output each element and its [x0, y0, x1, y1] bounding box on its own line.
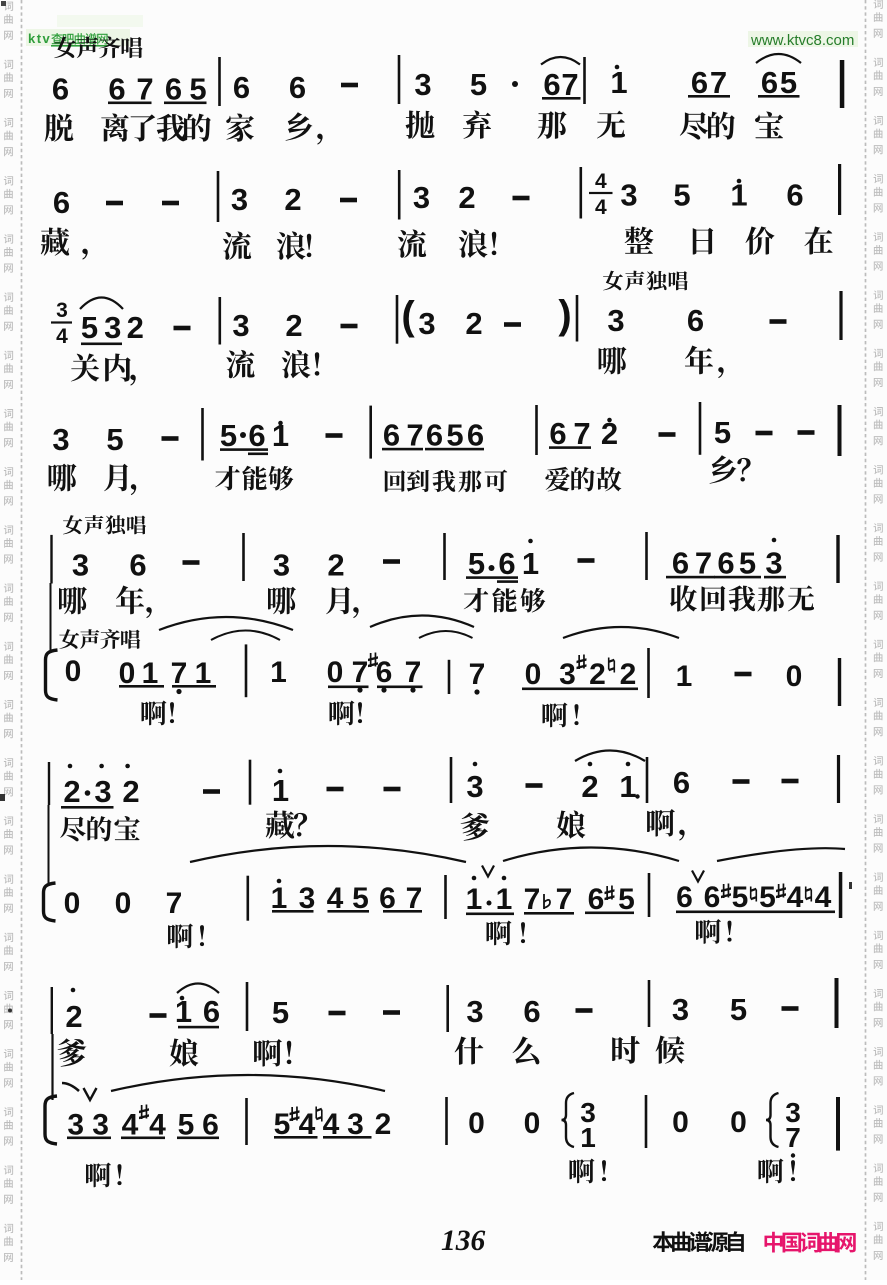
svg-text:3: 3 — [273, 548, 290, 583]
svg-text:0: 0 — [64, 887, 81, 920]
svg-text:3: 3 — [418, 306, 435, 341]
svg-text:3: 3 — [607, 303, 624, 338]
svg-text:7: 7 — [573, 416, 590, 451]
svg-text:2: 2 — [620, 658, 637, 691]
svg-text:7: 7 — [166, 887, 183, 920]
svg-text:5: 5 — [739, 546, 756, 581]
svg-text:6: 6 — [498, 546, 515, 581]
svg-text:6: 6 — [549, 416, 566, 451]
svg-text:7: 7 — [710, 65, 727, 100]
svg-text:0: 0 — [786, 660, 803, 693]
svg-text:5: 5 — [470, 67, 487, 102]
svg-text:3: 3 — [72, 548, 89, 583]
svg-text:5: 5 — [272, 995, 289, 1030]
svg-text:4: 4 — [56, 325, 68, 348]
svg-text:3: 3 — [56, 299, 68, 322]
svg-text:1: 1 — [619, 769, 636, 804]
svg-text:2: 2 — [284, 182, 301, 217]
svg-text:1: 1 — [676, 660, 693, 693]
svg-text:5: 5 — [780, 65, 797, 100]
svg-text:5: 5 — [81, 310, 98, 345]
svg-text:3: 3 — [414, 67, 431, 102]
svg-text:6: 6 — [673, 765, 690, 800]
svg-text:5: 5 — [759, 881, 776, 914]
svg-text:5: 5 — [468, 546, 485, 581]
svg-text:4: 4 — [815, 881, 832, 914]
svg-text:3: 3 — [466, 994, 483, 1029]
svg-text:7: 7 — [524, 883, 541, 916]
svg-text:0: 0 — [525, 658, 542, 691]
svg-text:3: 3 — [413, 180, 430, 215]
svg-text:1: 1 — [466, 883, 483, 916]
svg-text:2: 2 — [127, 310, 144, 345]
svg-text:3: 3 — [765, 546, 782, 581]
svg-text:6: 6 — [717, 546, 734, 581]
svg-text:6: 6 — [376, 656, 393, 689]
svg-text:6: 6 — [704, 881, 721, 914]
svg-text:2: 2 — [589, 658, 606, 691]
svg-text:6: 6 — [588, 883, 605, 916]
svg-text:3: 3 — [104, 310, 121, 345]
svg-text:3: 3 — [232, 308, 249, 343]
svg-text:5: 5 — [673, 178, 690, 213]
svg-text:3: 3 — [559, 658, 576, 691]
svg-text:5: 5 — [730, 992, 747, 1027]
svg-text:5: 5 — [189, 72, 206, 107]
svg-text:5: 5 — [618, 883, 635, 916]
svg-text:0: 0 — [468, 1107, 485, 1140]
svg-text:0: 0 — [730, 1106, 747, 1139]
svg-text:): ) — [558, 293, 571, 337]
svg-text:2: 2 — [285, 308, 302, 343]
svg-text:6: 6 — [383, 418, 400, 453]
svg-text:6: 6 — [543, 67, 560, 102]
svg-text:6: 6 — [523, 994, 540, 1029]
svg-text:3: 3 — [620, 178, 637, 213]
svg-text:5: 5 — [446, 418, 463, 453]
svg-text:6: 6 — [233, 70, 250, 105]
svg-text:0: 0 — [65, 655, 82, 688]
svg-text:2: 2 — [581, 769, 598, 804]
svg-text:2: 2 — [63, 774, 80, 809]
svg-text:6: 6 — [165, 72, 182, 107]
svg-text:6: 6 — [52, 72, 69, 107]
svg-text:1: 1 — [522, 546, 539, 581]
svg-text:7: 7 — [556, 883, 573, 916]
svg-text:2: 2 — [327, 548, 344, 583]
svg-text:2: 2 — [375, 1108, 392, 1141]
svg-text:7: 7 — [785, 1122, 801, 1153]
svg-text:6: 6 — [761, 65, 778, 100]
svg-text:4: 4 — [595, 170, 607, 193]
svg-text:7: 7 — [561, 67, 578, 102]
svg-text:6: 6 — [467, 418, 484, 453]
svg-text:6: 6 — [289, 70, 306, 105]
svg-text:1: 1 — [580, 1122, 596, 1153]
svg-text:7: 7 — [469, 658, 486, 691]
svg-text:7: 7 — [136, 72, 153, 107]
svg-text:6: 6 — [248, 418, 265, 453]
svg-text:0: 0 — [327, 656, 344, 689]
svg-text:6: 6 — [129, 548, 146, 583]
svg-text:7: 7 — [405, 656, 422, 689]
svg-text:6: 6 — [108, 72, 125, 107]
svg-text:3: 3 — [52, 422, 69, 457]
svg-text:3: 3 — [672, 992, 689, 1027]
svg-text:4: 4 — [787, 881, 804, 914]
svg-text:6: 6 — [786, 178, 803, 213]
svg-text:4: 4 — [595, 196, 607, 219]
svg-text:7: 7 — [695, 546, 712, 581]
svg-text:5: 5 — [732, 881, 749, 914]
svg-text:0: 0 — [672, 1106, 689, 1139]
svg-text:3: 3 — [231, 182, 248, 217]
svg-text:7: 7 — [352, 656, 369, 689]
svg-text:ktv: ktv — [28, 31, 51, 46]
svg-text:6: 6 — [203, 994, 220, 1029]
svg-text:5: 5 — [714, 415, 731, 450]
svg-text:1: 1 — [270, 656, 287, 689]
svg-text:3: 3 — [466, 769, 483, 804]
svg-text:2: 2 — [65, 999, 82, 1034]
svg-text:3: 3 — [94, 774, 111, 809]
svg-text:136: 136 — [441, 1225, 486, 1257]
svg-text:1: 1 — [272, 773, 289, 808]
svg-text:6: 6 — [672, 546, 689, 581]
svg-text:2: 2 — [465, 306, 482, 341]
svg-text:6: 6 — [691, 65, 708, 100]
svg-text:0: 0 — [115, 887, 132, 920]
svg-text:2: 2 — [122, 774, 139, 809]
svg-text:5: 5 — [106, 422, 123, 457]
svg-text:0: 0 — [524, 1107, 541, 1140]
svg-text:6: 6 — [676, 881, 693, 914]
svg-text:2: 2 — [458, 180, 475, 215]
svg-text:7: 7 — [406, 418, 423, 453]
svg-text:1: 1 — [610, 65, 627, 100]
svg-text:6: 6 — [426, 418, 443, 453]
svg-text:www.ktvc8.com: www.ktvc8.com — [750, 32, 854, 49]
svg-text:6: 6 — [53, 185, 70, 220]
svg-text:1: 1 — [496, 883, 513, 916]
svg-text:5: 5 — [220, 418, 237, 453]
svg-text:(: ( — [401, 294, 415, 338]
svg-text:6: 6 — [687, 303, 704, 338]
